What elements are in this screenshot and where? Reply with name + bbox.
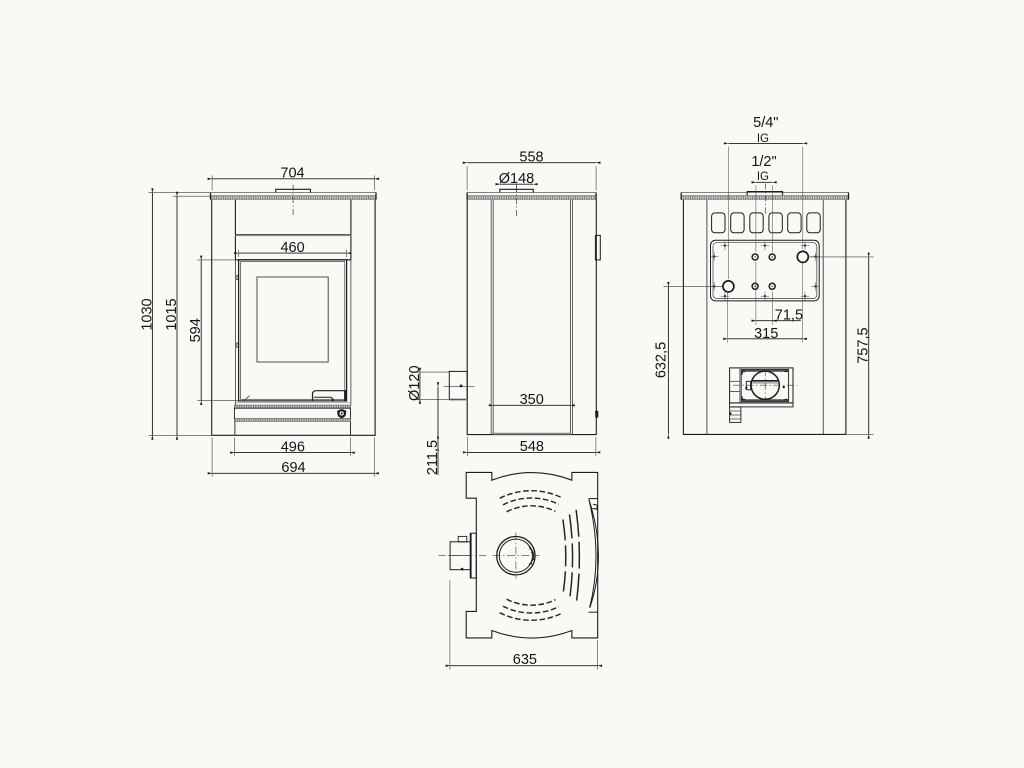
svg-text:IG: IG: [757, 171, 769, 183]
svg-text:496: 496: [281, 439, 305, 455]
svg-text:460: 460: [280, 240, 304, 256]
svg-text:350: 350: [520, 392, 544, 408]
svg-text:548: 548: [520, 439, 544, 455]
svg-text:558: 558: [519, 149, 543, 165]
svg-text:704: 704: [280, 166, 304, 182]
svg-text:1015: 1015: [164, 298, 180, 330]
svg-text:211,5: 211,5: [425, 440, 441, 475]
svg-text:Ø120: Ø120: [407, 365, 423, 400]
svg-text:Ø148: Ø148: [499, 171, 534, 187]
svg-text:632,5: 632,5: [653, 342, 669, 378]
svg-text:694: 694: [281, 460, 305, 476]
svg-text:757,5: 757,5: [856, 327, 872, 363]
svg-text:635: 635: [513, 652, 537, 668]
svg-text:315: 315: [754, 326, 778, 342]
svg-text:1030: 1030: [139, 298, 155, 330]
svg-text:594: 594: [188, 318, 204, 342]
svg-text:1/2": 1/2": [751, 154, 776, 170]
svg-text:5/4": 5/4": [753, 115, 778, 131]
svg-text:71,5: 71,5: [775, 307, 803, 323]
